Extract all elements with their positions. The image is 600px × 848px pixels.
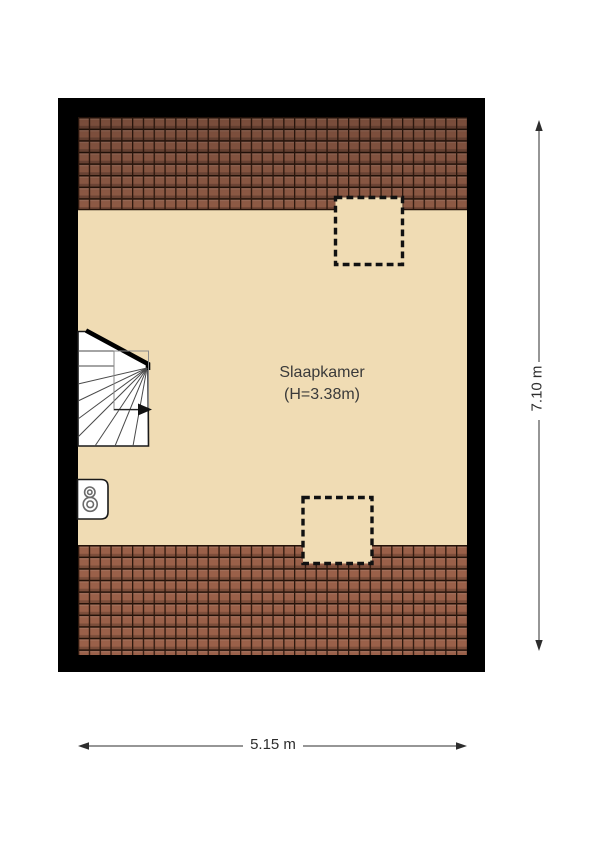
roof-tiles-bottom — [78, 545, 467, 655]
boiler-icon — [78, 480, 109, 520]
dimension-height-label: 7.10 m — [529, 349, 546, 429]
skylight-top — [336, 198, 403, 265]
room-label: Slaapkamer (H=3.38m) — [222, 362, 422, 406]
skylight-bottom — [303, 498, 372, 564]
floorplan-page: Slaapkamer (H=3.38m) 5.15 m 7.10 m — [0, 0, 600, 848]
room-ceiling-height: (H=3.38m) — [222, 384, 422, 406]
room-name: Slaapkamer — [222, 362, 422, 384]
dimension-width-label: 5.15 m — [233, 736, 313, 753]
roof-tiles-top — [78, 117, 467, 210]
floorplan-drawing — [0, 0, 600, 848]
